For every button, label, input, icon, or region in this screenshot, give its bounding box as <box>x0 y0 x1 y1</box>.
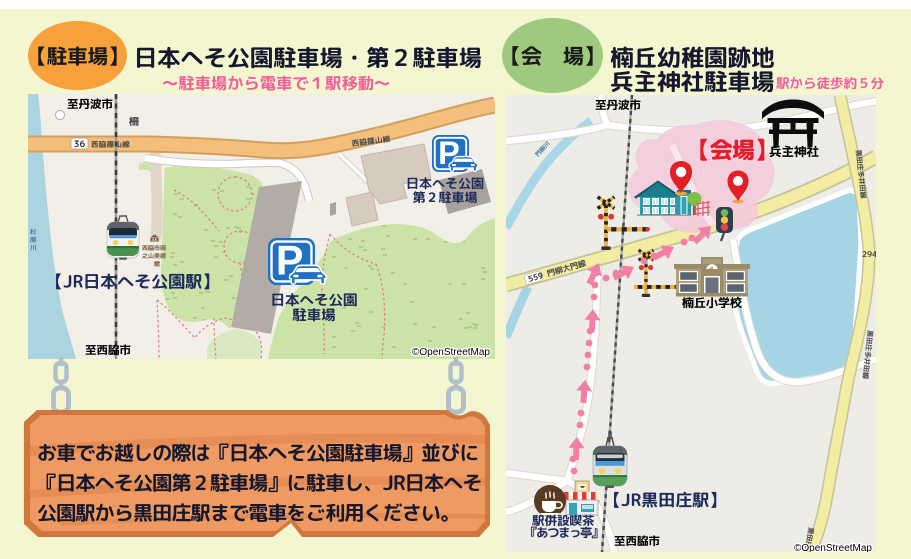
svg-text:©OpenStreetMap: ©OpenStreetMap <box>412 347 490 358</box>
